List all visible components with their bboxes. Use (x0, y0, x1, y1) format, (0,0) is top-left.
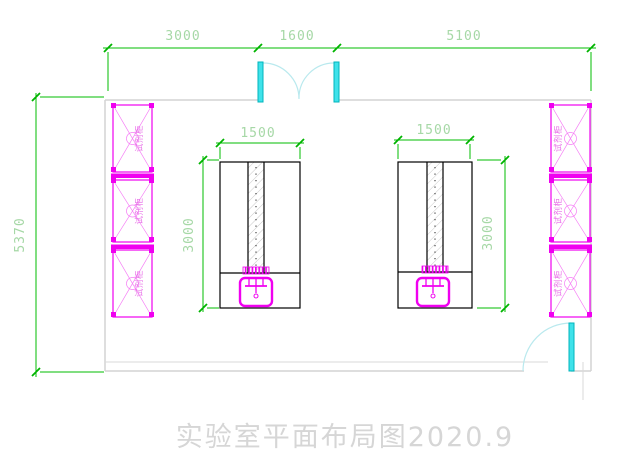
dimension-bench-left-depth: 3000 (182, 156, 219, 312)
door-leaf-right (334, 62, 339, 102)
dimension-chain-top: 3000 1600 5100 (103, 29, 596, 91)
bench-width-label: 1500 (416, 123, 451, 138)
door-leaf-left (258, 62, 263, 102)
reagent-cabinet: 试剂柜 (549, 178, 592, 242)
dimension-bench-left-width: 1500 (216, 126, 304, 159)
reagent-cabinet: 试剂柜 (111, 178, 154, 242)
cabinet-separator (549, 174, 592, 179)
fume-bench-right (398, 162, 472, 308)
dimension-bench-right-depth: 3000 (477, 156, 509, 312)
cabinet-label: 试剂柜 (553, 197, 564, 224)
dim-left-label: 5370 (13, 217, 28, 252)
dim-extension-lines (398, 144, 470, 159)
double-door-top (258, 62, 339, 102)
cabinet-label: 试剂柜 (134, 270, 145, 297)
reagent-cabinet: 试剂柜 (549, 248, 592, 317)
reagent-cabinet: 试剂柜 (111, 103, 154, 172)
cabinet-label: 试剂柜 (134, 197, 145, 224)
dimension-bench-right-width: 1500 (394, 123, 474, 159)
bench-width-label: 1500 (240, 126, 275, 141)
door-arc-left (263, 63, 299, 99)
room-walls (105, 100, 591, 400)
cabinet-separator (111, 174, 154, 179)
floor-plan-canvas[interactable]: 试剂柜 试剂柜 试剂柜 (0, 0, 619, 469)
sink-symbol (240, 267, 272, 306)
dim-extension-lines (108, 52, 591, 91)
dimension-left: 5370 (13, 93, 104, 377)
bench-depth-label: 3000 (182, 217, 197, 252)
cabinet-label: 试剂柜 (553, 125, 564, 152)
sink-symbol (417, 266, 449, 306)
bench-hatch-strip (248, 162, 264, 273)
door-leaf (569, 323, 574, 371)
dim-top-right-label: 5100 (446, 29, 481, 44)
dim-top-left-label: 3000 (165, 29, 200, 44)
reagent-cabinet: 试剂柜 (549, 103, 592, 172)
bench-depth-label: 3000 (481, 215, 496, 250)
cabinet-label: 试剂柜 (134, 125, 145, 152)
bench-hatch-strip (427, 162, 443, 272)
dim-top-middle-label: 1600 (279, 29, 314, 44)
reagent-cabinet: 试剂柜 (111, 248, 154, 317)
dim-extension-lines (207, 160, 219, 308)
fume-bench-left (220, 162, 300, 308)
floor-plan-title: 实验室平面布局图2020.9 (176, 422, 514, 453)
door-arc-right (299, 63, 334, 98)
cabinet-column-left: 试剂柜 试剂柜 试剂柜 (111, 103, 154, 317)
cabinet-label: 试剂柜 (553, 270, 564, 297)
dim-extension-lines (40, 97, 104, 372)
cabinet-separator (549, 245, 592, 250)
single-door-bottom-right (523, 323, 574, 371)
cabinet-column-right: 试剂柜 试剂柜 试剂柜 (549, 103, 592, 317)
cabinet-separator (111, 245, 154, 250)
dim-extension-lines (220, 147, 300, 159)
door-arc (523, 323, 571, 371)
